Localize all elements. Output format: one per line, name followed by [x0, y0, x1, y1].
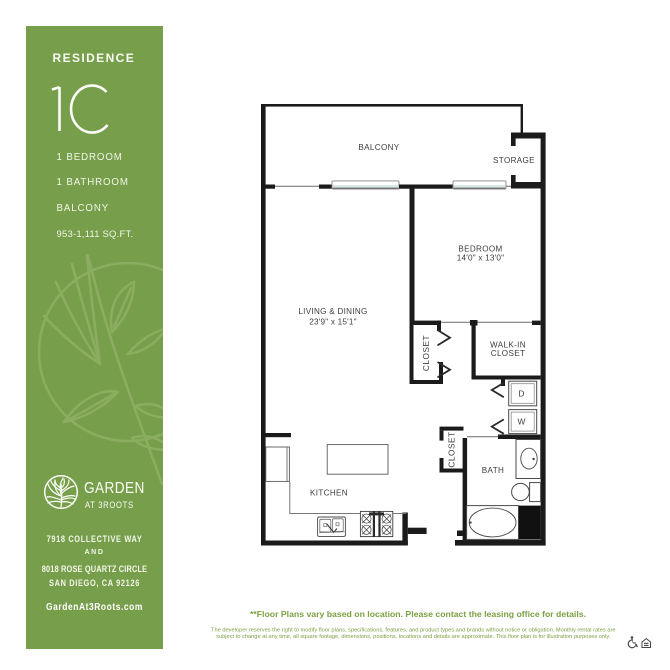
svg-text:CLOSET: CLOSET: [421, 335, 431, 371]
svg-text:BATH: BATH: [482, 466, 504, 475]
svg-text:14'0" x 13'0": 14'0" x 13'0": [457, 254, 505, 263]
svg-text:23'9" x 15'1": 23'9" x 15'1": [309, 318, 357, 327]
svg-text:D: D: [518, 389, 524, 399]
svg-text:CLOSET: CLOSET: [491, 349, 525, 358]
svg-text:STORAGE: STORAGE: [493, 156, 535, 165]
svg-text:BALCONY: BALCONY: [358, 143, 399, 152]
svg-text:W: W: [517, 417, 525, 427]
svg-text:WALK-IN: WALK-IN: [490, 340, 526, 349]
svg-text:KITCHEN: KITCHEN: [310, 489, 348, 498]
svg-text:BEDROOM: BEDROOM: [458, 245, 502, 254]
svg-text:LIVING & DINING: LIVING & DINING: [298, 307, 367, 316]
svg-text:CLOSET: CLOSET: [447, 431, 457, 467]
